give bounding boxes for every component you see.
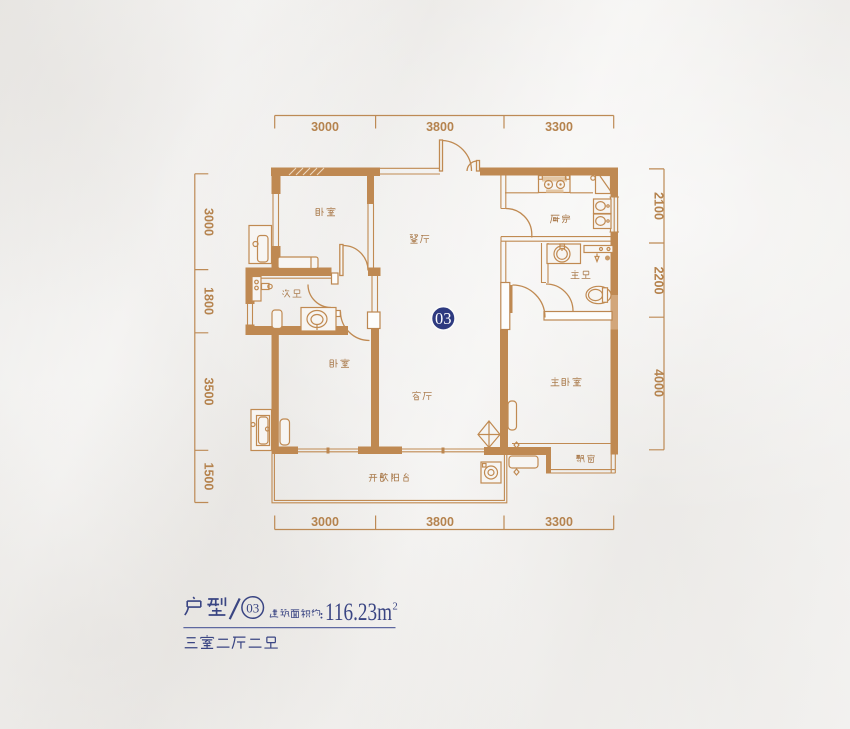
svg-text:03: 03: [246, 600, 259, 615]
svg-text:3800: 3800: [426, 120, 454, 134]
svg-text:1800: 1800: [202, 287, 216, 315]
svg-text:2: 2: [393, 602, 398, 613]
svg-text:3000: 3000: [202, 208, 216, 236]
svg-text:2100: 2100: [652, 192, 666, 220]
svg-text:3800: 3800: [426, 515, 454, 529]
svg-text:3000: 3000: [311, 120, 339, 134]
svg-text::: :: [320, 608, 324, 622]
svg-text:116.23m: 116.23m: [325, 597, 392, 626]
svg-text:3500: 3500: [202, 378, 216, 406]
svg-text:03: 03: [435, 309, 452, 328]
svg-text:3300: 3300: [545, 120, 573, 134]
svg-text:2200: 2200: [652, 267, 666, 295]
svg-text:3300: 3300: [545, 515, 573, 529]
svg-text:1500: 1500: [202, 462, 216, 490]
svg-text:4000: 4000: [652, 369, 666, 397]
svg-text:3000: 3000: [311, 515, 339, 529]
